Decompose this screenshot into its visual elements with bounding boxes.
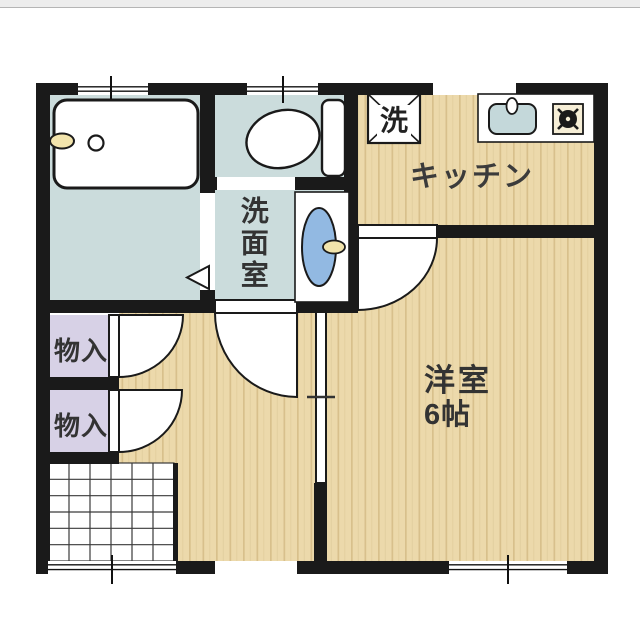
stove-icon bbox=[553, 104, 583, 134]
kitchen-counter bbox=[478, 94, 594, 142]
storage-lower-label: 物入 bbox=[50, 412, 112, 441]
wall-partition-lower bbox=[314, 483, 327, 561]
kitchen-faucet-icon bbox=[507, 98, 518, 114]
western-room-size-label: 6帖 bbox=[424, 400, 471, 432]
kitchen-label: キッチン bbox=[392, 162, 552, 194]
door-leaf bbox=[358, 225, 437, 238]
washroom-label: 洗面室 bbox=[237, 196, 268, 304]
bathtub-drain-icon bbox=[89, 136, 104, 151]
window-kitchen-top bbox=[433, 83, 516, 95]
storage-upper-label: 物入 bbox=[50, 337, 112, 366]
wall-storage-bottom bbox=[36, 452, 119, 464]
washbasin-faucet-icon bbox=[323, 241, 345, 254]
floor-plan-page: 洗 キッチン 洋室 6帖 洗面室 物入 物入 bbox=[0, 0, 640, 630]
floor-plan-svg bbox=[0, 0, 640, 630]
entrance-grid bbox=[48, 463, 174, 561]
wall-kitchen-western bbox=[437, 225, 594, 238]
wall-right bbox=[594, 83, 608, 574]
bathtub-faucet-icon bbox=[50, 134, 74, 149]
western-room-label: 洋室 bbox=[424, 364, 492, 398]
opening-toilet-washroom bbox=[217, 177, 295, 190]
washer-label: 洗 bbox=[377, 105, 411, 137]
wall-left bbox=[36, 83, 50, 574]
wall-entrance-side bbox=[173, 463, 178, 561]
washbasin-vanity bbox=[295, 192, 349, 302]
opening-hall-bottom bbox=[215, 561, 297, 574]
bathtub-icon bbox=[54, 100, 198, 188]
wall-storage-divider bbox=[36, 377, 119, 390]
